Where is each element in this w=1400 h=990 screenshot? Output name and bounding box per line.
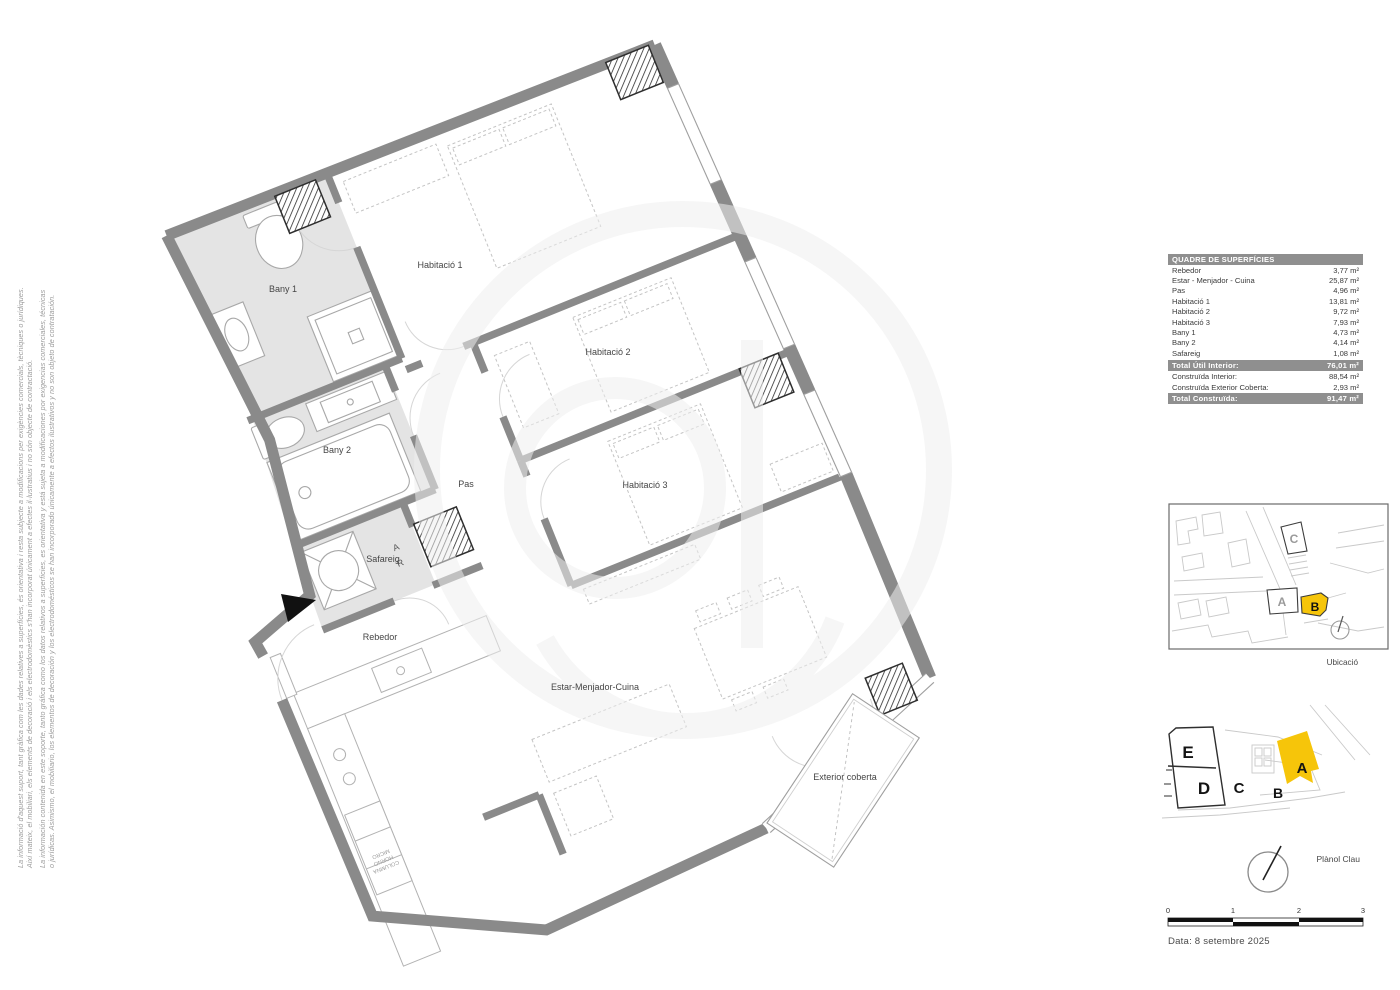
label-exterior: Exterior coberta xyxy=(813,772,877,782)
location-map-label: Ubicació xyxy=(1327,658,1359,667)
table-row: Construïda Exterior Coberta:2,93 m² xyxy=(1168,382,1363,392)
svg-text:2: 2 xyxy=(1297,906,1301,915)
date-line: Data: 8 setembre 2025 xyxy=(1168,936,1270,947)
key-letter-d: D xyxy=(1198,779,1210,798)
map-letter-a: A xyxy=(1278,595,1287,609)
table-row: Pas4,96 m² xyxy=(1168,286,1363,296)
table-row: Safareig1,08 m² xyxy=(1168,348,1363,358)
surface-table-header: QUADRE DE SUPERFÍCIES xyxy=(1168,254,1363,265)
key-letter-c: C xyxy=(1234,780,1245,797)
key-letter-b: B xyxy=(1273,785,1283,801)
table-row: Rebedor3,77 m² xyxy=(1168,265,1363,275)
label-bany2: Bany 2 xyxy=(323,445,351,455)
table-row: Habitació 113,81 m² xyxy=(1168,296,1363,306)
svg-text:1: 1 xyxy=(1231,906,1235,915)
location-map: C A B Ubicació xyxy=(1168,503,1390,673)
label-rebedor: Rebedor xyxy=(363,632,398,642)
table-row: Bany 24,14 m² xyxy=(1168,338,1363,348)
scale-ticks: 0 1 2 3 xyxy=(1166,906,1365,915)
total-constructed-row: Total Construïda: 91,47 m² xyxy=(1168,393,1363,404)
total-util-row: Total Útil Interior: 76,01 m² xyxy=(1168,360,1363,371)
label-hab3: Habitació 3 xyxy=(622,480,667,490)
map-frame xyxy=(1169,504,1388,649)
map-letter-b: B xyxy=(1311,600,1320,614)
table-row: Estar - Menjador - Cuina25,87 m² xyxy=(1168,275,1363,285)
label-pas: Pas xyxy=(458,479,474,489)
table-row: Construïda Interior:88,54 m² xyxy=(1168,372,1363,382)
key-letter-a: A xyxy=(1297,760,1308,777)
table-row: Habitació 29,72 m² xyxy=(1168,307,1363,317)
label-hab1: Habitació 1 xyxy=(417,260,462,270)
label-safareig: Safareig xyxy=(366,554,400,564)
table-row: Habitació 37,93 m² xyxy=(1168,317,1363,327)
map-letter-c: C xyxy=(1290,532,1299,546)
surface-table: QUADRE DE SUPERFÍCIES Rebedor3,77 m² Est… xyxy=(1168,254,1363,405)
label-bany1: Bany 1 xyxy=(269,284,297,294)
key-letter-e: E xyxy=(1182,743,1193,762)
svg-text:0: 0 xyxy=(1166,906,1170,915)
label-hab2: Habitació 2 xyxy=(585,347,630,357)
key-plan-label: Plànol Clau xyxy=(1317,854,1361,864)
surface-table-title: QUADRE DE SUPERFÍCIES xyxy=(1172,255,1275,264)
key-plan-north-icon xyxy=(1248,846,1288,892)
table-row: Bany 14,73 m² xyxy=(1168,327,1363,337)
scale-bar: 0 1 2 3 xyxy=(1160,903,1375,935)
svg-text:3: 3 xyxy=(1361,906,1365,915)
key-plan: E D C B A Plànol Clau xyxy=(1160,700,1395,905)
floorplan-sheet: { "disclaimer": { "ca1": "La informació … xyxy=(0,0,1400,990)
key-plan-block-ed xyxy=(1164,727,1225,808)
floor-plan-drawing: A R COLUMNA HORNO MICRO Bany 1 Bany 2 Ha… xyxy=(0,0,1150,990)
label-estar: Estar-Menjador-Cuina xyxy=(551,682,639,692)
